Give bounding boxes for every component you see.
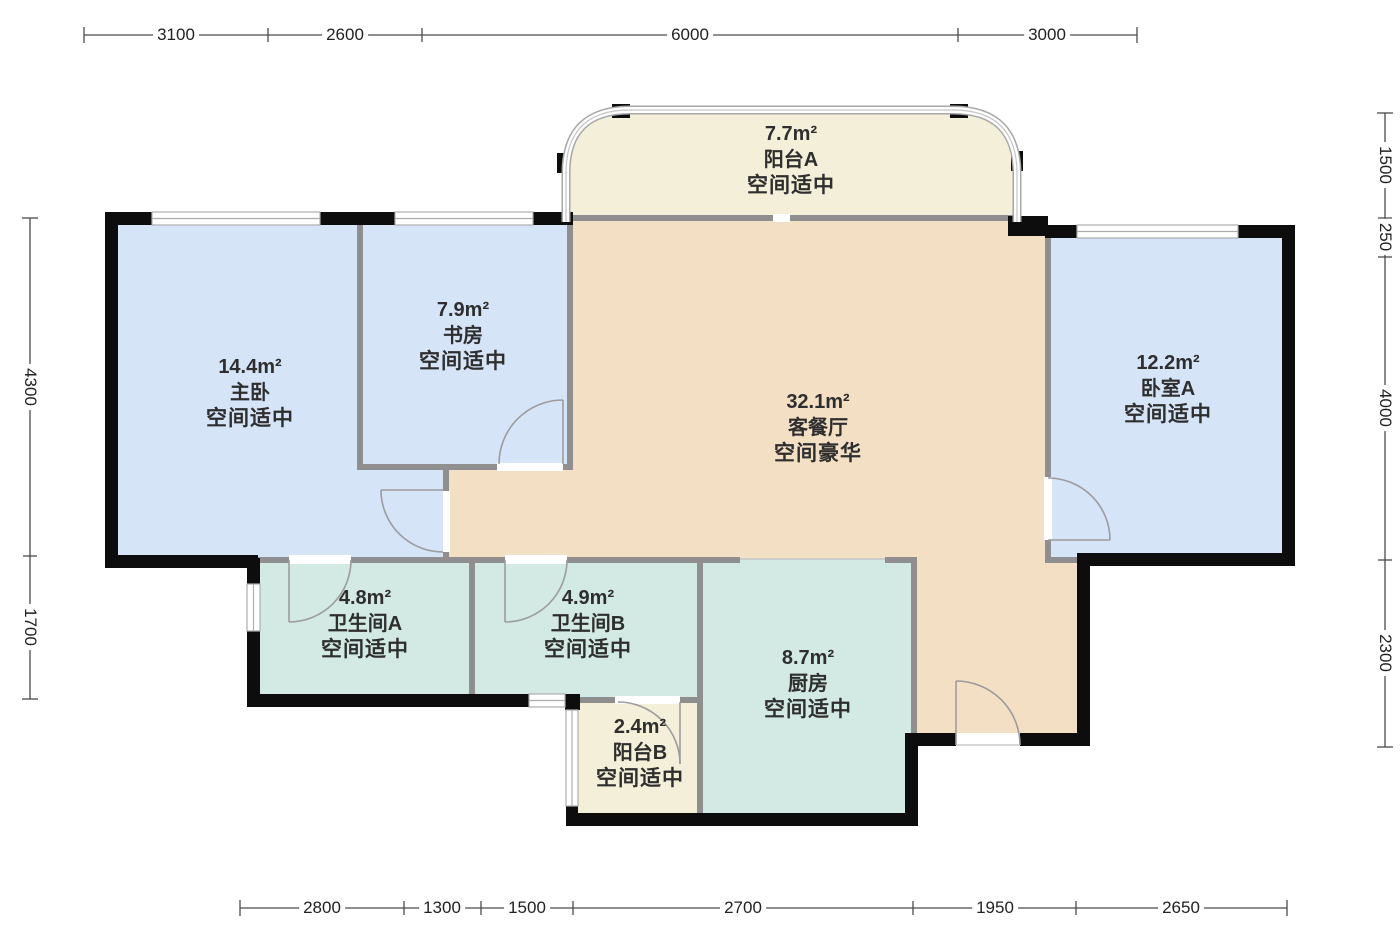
dim-label-right-4000: 4000 bbox=[1375, 385, 1395, 431]
dim-label-top-3100: 3100 bbox=[153, 25, 199, 45]
room-label-bedroom-a: 12.2m² 卧室A 空间适中 bbox=[1124, 350, 1212, 428]
room-grade: 空间适中 bbox=[544, 637, 632, 663]
room-label-balcony-a: 7.7m² 阳台A 空间适中 bbox=[747, 121, 835, 199]
dim-label-bottom-1300: 1300 bbox=[419, 898, 465, 918]
room-label-bathroom-b: 4.9m² 卫生间B 空间适中 bbox=[544, 585, 632, 663]
room-name: 卫生间B bbox=[544, 611, 632, 637]
dim-label-left-4300: 4300 bbox=[20, 364, 40, 410]
room-area: 2.4m² bbox=[596, 714, 684, 740]
room-area: 7.7m² bbox=[747, 121, 835, 147]
room-area: 7.9m² bbox=[419, 297, 507, 323]
dim-label-right-2300: 2300 bbox=[1375, 630, 1395, 676]
dim-label-bottom-2800: 2800 bbox=[299, 898, 345, 918]
room-name: 主卧 bbox=[206, 380, 294, 406]
room-area: 14.4m² bbox=[206, 354, 294, 380]
room-name: 书房 bbox=[419, 323, 507, 349]
window-balcony-b-left bbox=[566, 710, 578, 806]
room-grade: 空间豪华 bbox=[774, 441, 862, 467]
room-grade: 空间适中 bbox=[1124, 402, 1212, 428]
dim-label-right-250: 250 bbox=[1375, 219, 1395, 255]
dim-label-bottom-2700: 2700 bbox=[720, 898, 766, 918]
room-area: 12.2m² bbox=[1124, 350, 1212, 376]
window-bathroom-b-bottom bbox=[529, 694, 565, 707]
room-label-balcony-b: 2.4m² 阳台B 空间适中 bbox=[596, 714, 684, 792]
room-label-master-bedroom: 14.4m² 主卧 空间适中 bbox=[206, 354, 294, 432]
dim-label-top-2600: 2600 bbox=[322, 25, 368, 45]
dim-label-bottom-1500: 1500 bbox=[504, 898, 550, 918]
dim-label-right-1500: 1500 bbox=[1375, 142, 1395, 188]
room-label-kitchen: 8.7m² 厨房 空间适中 bbox=[764, 645, 852, 723]
dim-label-left-1700: 1700 bbox=[20, 604, 40, 650]
room-area: 4.9m² bbox=[544, 585, 632, 611]
room-area: 32.1m² bbox=[774, 389, 862, 415]
window-bedroom-a-top bbox=[1077, 225, 1238, 238]
room-area: 4.8m² bbox=[321, 585, 409, 611]
room-name: 厨房 bbox=[764, 671, 852, 697]
room-grade: 空间适中 bbox=[419, 349, 507, 375]
window-bathroom-a-left bbox=[247, 584, 260, 631]
room-grade: 空间适中 bbox=[596, 766, 684, 792]
room-grade: 空间适中 bbox=[321, 637, 409, 663]
room-label-living-dining: 32.1m² 客餐厅 空间豪华 bbox=[774, 389, 862, 467]
room-name: 卧室A bbox=[1124, 376, 1212, 402]
room-label-study: 7.9m² 书房 空间适中 bbox=[419, 297, 507, 375]
dim-label-top-6000: 6000 bbox=[667, 25, 713, 45]
floor-plan-canvas bbox=[0, 0, 1400, 934]
room-grade: 空间适中 bbox=[206, 406, 294, 432]
room-name: 阳台B bbox=[596, 740, 684, 766]
room-name: 卫生间A bbox=[321, 611, 409, 637]
dim-label-top-3000: 3000 bbox=[1024, 25, 1070, 45]
floor-plan-screenshot: 3100 2600 6000 3000 2800 1300 1500 2700 … bbox=[0, 0, 1400, 934]
dim-label-bottom-1950: 1950 bbox=[972, 898, 1018, 918]
window-study-top bbox=[395, 212, 533, 225]
room-label-bathroom-a: 4.8m² 卫生间A 空间适中 bbox=[321, 585, 409, 663]
window-master-top bbox=[152, 212, 320, 225]
room-area: 8.7m² bbox=[764, 645, 852, 671]
room-grade: 空间适中 bbox=[747, 173, 835, 199]
room-name: 阳台A bbox=[747, 147, 835, 173]
room-name: 客餐厅 bbox=[774, 415, 862, 441]
room-grade: 空间适中 bbox=[764, 697, 852, 723]
dim-label-bottom-2650: 2650 bbox=[1158, 898, 1204, 918]
